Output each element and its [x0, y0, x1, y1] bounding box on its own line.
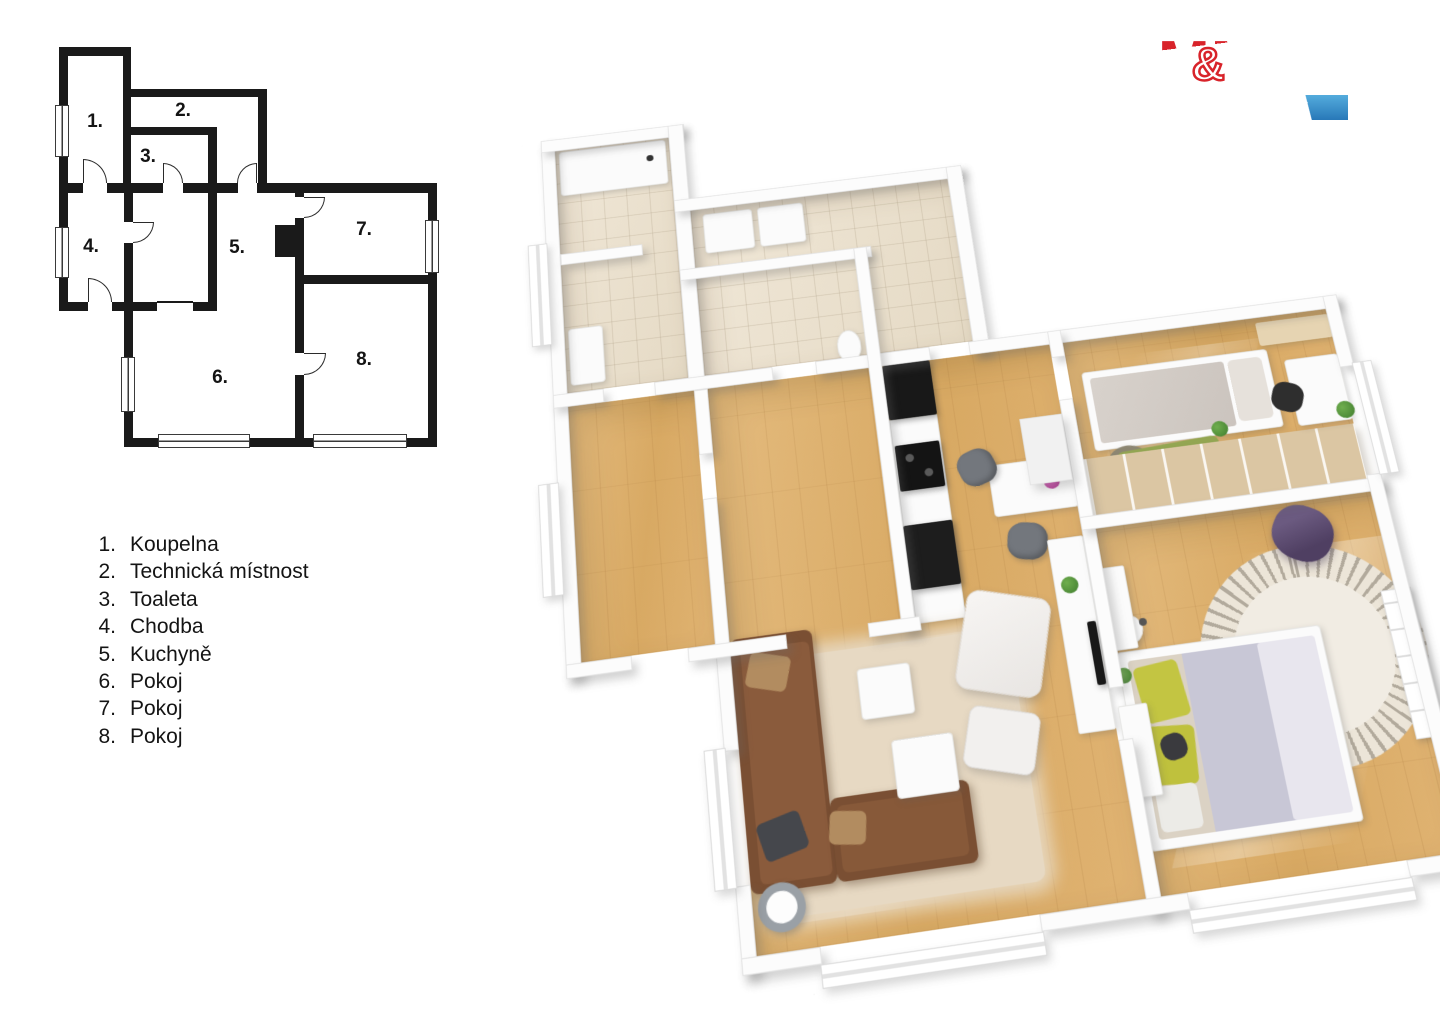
room-number-label: 5.	[229, 237, 245, 259]
legend-label: Pokoj	[130, 723, 183, 750]
wall-segment	[59, 183, 83, 193]
door-arc	[304, 197, 325, 218]
legend-item: 5.Kuchyně	[90, 641, 309, 668]
fridge	[882, 360, 937, 420]
door-arc	[237, 163, 257, 183]
wall-segment	[123, 47, 131, 184]
legend-number: 8.	[90, 723, 116, 750]
window-symbol	[55, 227, 69, 278]
wall-segment	[59, 302, 88, 311]
legend-label: Toaleta	[130, 586, 198, 613]
legend-number: 1.	[90, 531, 116, 558]
door-arc	[88, 278, 112, 302]
wall-segment	[123, 89, 267, 97]
wall-segment	[112, 302, 157, 311]
room-number-label: 2.	[175, 100, 191, 122]
room-number-label: 8.	[356, 349, 372, 371]
oven-panel	[903, 520, 961, 591]
wall-segment	[295, 183, 304, 197]
hallway-floor	[568, 391, 715, 663]
wall-segment	[258, 89, 267, 184]
wall-segment	[131, 127, 217, 135]
cooktop	[895, 440, 946, 492]
logo-ampersand: &	[1192, 39, 1225, 89]
wall-segment	[124, 243, 133, 357]
wall-segment	[124, 193, 133, 222]
armchair	[954, 588, 1053, 699]
dining-chair	[1007, 522, 1048, 560]
wall-segment	[193, 302, 217, 311]
legend-item: 7.Pokoj	[90, 695, 309, 722]
wall-segment	[107, 183, 163, 193]
window-symbol	[158, 434, 250, 448]
opening-line	[157, 301, 193, 303]
floorplan-2d: 1. 2. 3. 4. 5. 6. 7. 8.	[40, 10, 452, 462]
wall-segment	[428, 273, 437, 447]
legend-number: 4.	[90, 613, 116, 640]
chimney-block	[275, 225, 297, 257]
real-estate-floorplan-page: 1. 2. 3. 4. 5. 6. 7. 8. 1.Koupelna 2.Tec…	[0, 0, 1440, 810]
window-symbol	[425, 220, 439, 273]
coffee-table	[856, 662, 915, 720]
door-arc	[163, 163, 183, 183]
wall-segment	[407, 438, 437, 447]
ottoman	[962, 704, 1042, 776]
wall-segment	[257, 183, 437, 193]
sofa-pillow	[744, 652, 791, 693]
wall-segment	[208, 127, 217, 310]
legend-item: 6.Pokoj	[90, 668, 309, 695]
wall-segment	[295, 275, 437, 284]
technical-room-floor	[690, 179, 972, 376]
legend-item: 3.Toaleta	[90, 586, 309, 613]
window-symbol	[121, 357, 135, 412]
boiler	[757, 202, 807, 246]
window-symbol	[55, 105, 69, 157]
wall-segment	[183, 183, 238, 193]
legend-label: Koupelna	[130, 531, 219, 558]
legend-label: Kuchyně	[130, 641, 212, 668]
coffee-table	[891, 732, 960, 799]
legend-label: Chodba	[130, 613, 204, 640]
legend-item: 8.Pokoj	[90, 723, 309, 750]
legend-item: 1.Koupelna	[90, 531, 309, 558]
legend-item: 4.Chodba	[90, 613, 309, 640]
legend-number: 3.	[90, 586, 116, 613]
wall-segment	[250, 438, 313, 447]
legend-number: 5.	[90, 641, 116, 668]
legend-label: Pokoj	[130, 695, 183, 722]
legend-item: 2.Technická místnost	[90, 558, 309, 585]
legend-number: 7.	[90, 695, 116, 722]
legend-number: 6.	[90, 668, 116, 695]
door-arc	[133, 222, 154, 243]
legend-label: Pokoj	[130, 668, 183, 695]
floorplan-3d	[492, 0, 1440, 842]
room-legend: 1.Koupelna 2.Technická místnost 3.Toalet…	[90, 531, 309, 750]
bathroom-vanity	[568, 325, 606, 386]
washing-machine	[702, 209, 755, 254]
legend-label: Technická místnost	[130, 558, 309, 585]
wall-segment	[124, 438, 158, 447]
legend-number: 2.	[90, 558, 116, 585]
door-arc	[83, 159, 107, 183]
room-number-label: 7.	[356, 219, 372, 241]
window-symbol	[313, 434, 407, 448]
room-number-label: 1.	[87, 111, 103, 133]
wall-segment	[428, 183, 437, 220]
floorplan-3d-plan	[541, 53, 1440, 1000]
room-number-label: 3.	[140, 146, 156, 168]
room-number-label: 4.	[83, 236, 99, 258]
sofa-pillow	[829, 811, 867, 845]
wall-segment	[295, 375, 304, 447]
wall-segment	[59, 47, 131, 56]
room-number-label: 6.	[212, 367, 228, 389]
door-arc	[304, 353, 326, 375]
